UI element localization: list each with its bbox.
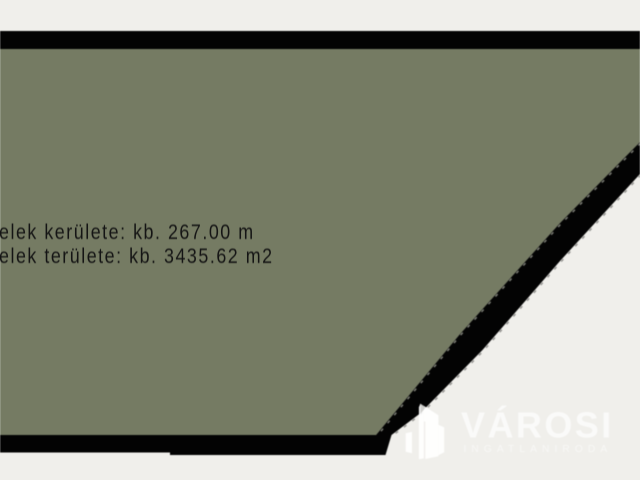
svg-text:VÁROSI: VÁROSI [461,405,614,446]
svg-text:INGATLANIRODA: INGATLANIRODA [464,444,613,455]
